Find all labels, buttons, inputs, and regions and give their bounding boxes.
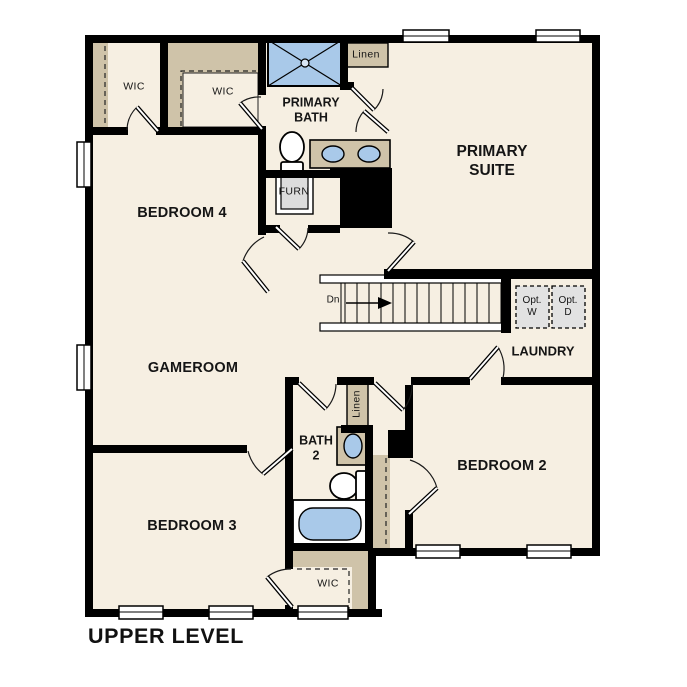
shower-icon (268, 40, 342, 86)
opt-dryer-label: Opt. D (559, 295, 578, 319)
floor-plan: WIC WIC PRIMARY BATH Linen PRIMARY SUITE… (0, 0, 687, 687)
wic-bottom-label: WIC (317, 578, 339, 589)
wic1-shelf (93, 43, 108, 127)
laundry-label: LAUNDRY (511, 343, 574, 358)
linen-top-label: Linen (352, 49, 380, 60)
wic2-inner-floor (183, 73, 258, 127)
floor-plan-drawing (0, 0, 687, 687)
bedroom2-closet-shelf (372, 455, 390, 548)
bathtub-icon (293, 500, 368, 548)
wic3-shelf-right (352, 551, 370, 612)
wic-top-left-label: WIC (123, 81, 145, 92)
bedroom-3-label: BEDROOM 3 (147, 519, 237, 535)
primary-vanity-icon (310, 140, 390, 168)
bath-2-label: BATH 2 (299, 433, 333, 463)
furnace-label: FURN (279, 186, 310, 197)
primary-toilet-icon (280, 132, 304, 172)
bath2-toilet-icon (330, 471, 367, 501)
primary-bath-label: PRIMARY BATH (282, 95, 339, 125)
plan-title: UPPER LEVEL (88, 624, 244, 649)
bedroom-2-label: BEDROOM 2 (457, 459, 547, 475)
primary-suite-label: PRIMARY SUITE (457, 143, 528, 181)
linen-mid-label: Linen (351, 390, 362, 418)
bedroom-4-label: BEDROOM 4 (137, 206, 227, 222)
opt-washer-label: Opt. W (523, 295, 542, 319)
wic-top-mid-label: WIC (212, 86, 234, 97)
gameroom-label: GAMEROOM (148, 361, 238, 377)
stairs-dn-label: Dn (327, 296, 340, 307)
